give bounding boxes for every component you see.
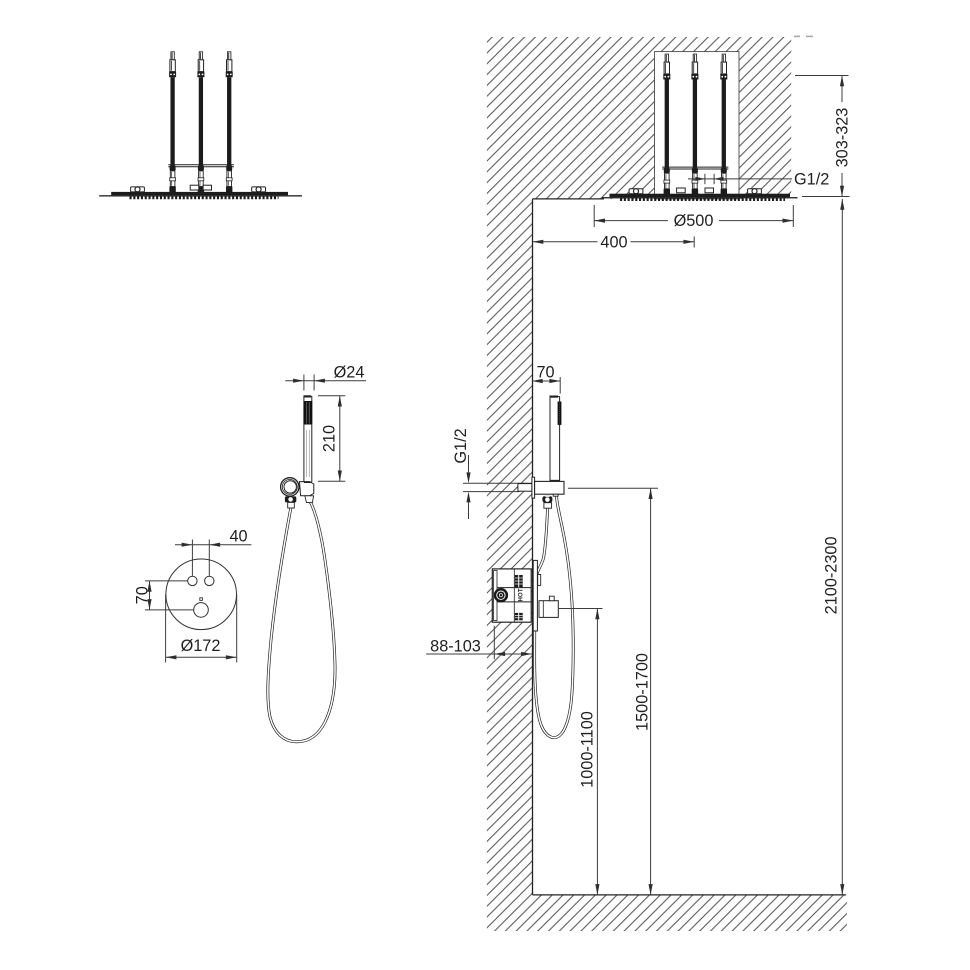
svg-text:G1/2: G1/2: [794, 171, 829, 189]
svg-text:40: 40: [229, 528, 247, 546]
svg-text:210: 210: [320, 425, 338, 452]
svg-text:303-323: 303-323: [834, 108, 852, 168]
svg-text:Ø172: Ø172: [181, 637, 221, 655]
svg-text:1500-1700: 1500-1700: [634, 653, 652, 731]
svg-text:G1/2: G1/2: [452, 428, 470, 463]
svg-text:2100-2300: 2100-2300: [823, 536, 841, 614]
svg-text:Ø24: Ø24: [334, 364, 365, 382]
svg-text:70: 70: [133, 586, 151, 604]
svg-text:88-103: 88-103: [430, 637, 481, 655]
svg-text:1000-1100: 1000-1100: [578, 711, 596, 788]
svg-text:Ø500: Ø500: [674, 212, 714, 230]
svg-text:HOT: HOT: [517, 588, 524, 601]
svg-text:70: 70: [536, 364, 554, 382]
svg-text:400: 400: [600, 233, 627, 251]
